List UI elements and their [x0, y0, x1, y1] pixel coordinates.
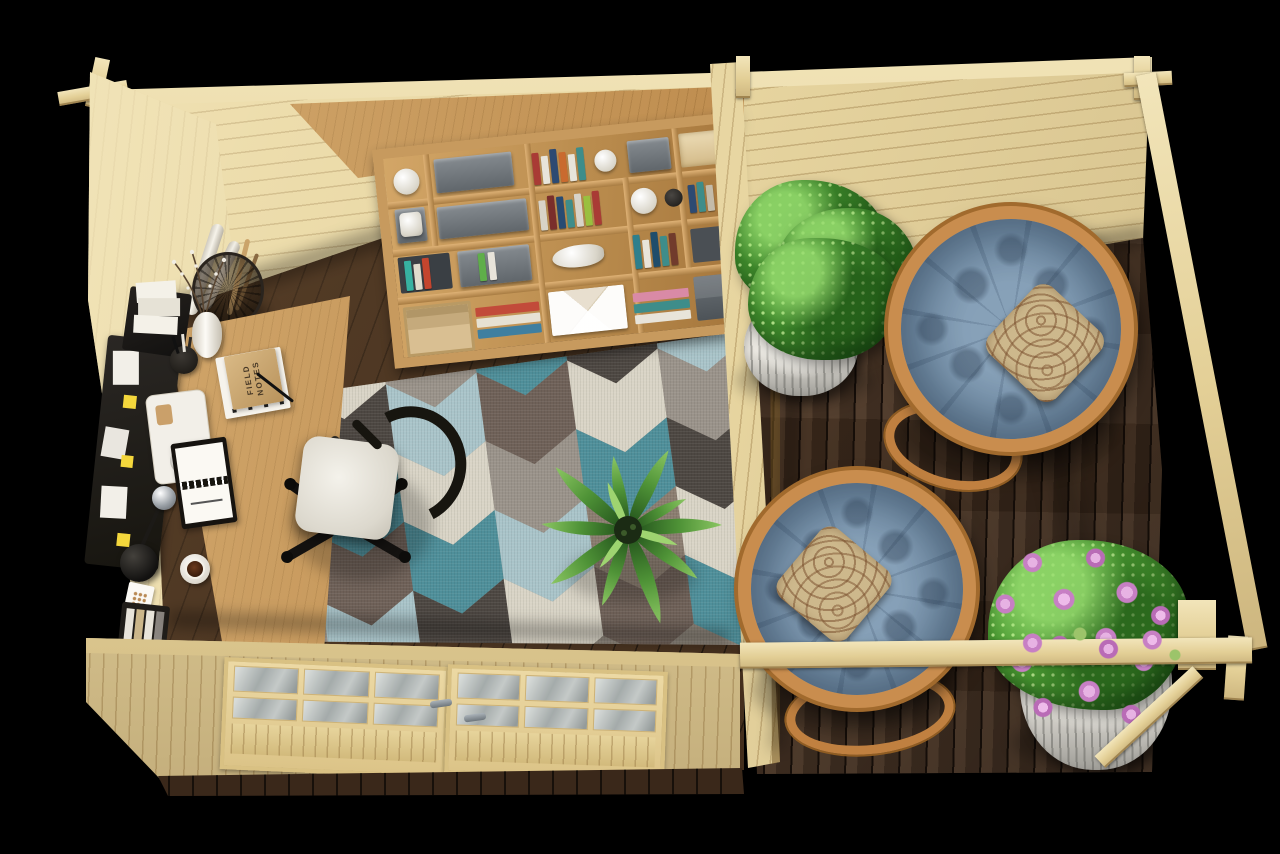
book-spine: [668, 233, 678, 266]
glass-pane: [372, 703, 438, 728]
stacked-books: [632, 288, 691, 328]
lamp-chrome-ball: [152, 486, 176, 510]
coffee-saucer: [180, 554, 210, 584]
papasan-chair-1: [888, 206, 1134, 452]
white-note: [113, 351, 139, 385]
white-note: [100, 486, 128, 519]
white-geo-vase: [399, 211, 423, 237]
book-spine: [642, 240, 652, 269]
door-lower-panel: [455, 731, 656, 768]
glazed-door-right: [444, 664, 668, 782]
bookshelf-unit: [372, 112, 753, 368]
glass-pane: [592, 708, 656, 732]
glazed-door-left: [220, 657, 451, 779]
white-pattern-box: [548, 284, 628, 336]
book-spine: [568, 154, 578, 182]
ruled-line: [191, 499, 223, 505]
book-spine: [413, 264, 423, 291]
paisley-pillow-1: [980, 278, 1110, 408]
paisley-pillow-2: [771, 521, 898, 648]
eraser: [155, 404, 173, 426]
gray-drawer-box: [433, 151, 514, 193]
partition-top-post: [736, 56, 750, 98]
white-dome-ornament: [630, 187, 659, 216]
door-lower-panel: [230, 723, 437, 762]
sticky-note: [120, 455, 133, 468]
white-dome-ornament: [392, 167, 421, 196]
white-cup-ornament: [593, 149, 617, 173]
bush-foliage: [748, 238, 898, 360]
wood-crate: [403, 301, 476, 358]
spiral-binding: [180, 476, 229, 491]
notepad-pages: [175, 442, 233, 524]
spiral-notepad: [170, 437, 237, 530]
glass-pane: [457, 673, 521, 701]
papasan-chair-2: [738, 470, 976, 708]
book-spine: [592, 191, 603, 226]
sticky-note: [116, 533, 130, 547]
glass-pane: [525, 675, 589, 703]
book-spine: [687, 184, 697, 213]
coffee-cup: [187, 561, 203, 577]
pen-cup: [170, 346, 198, 374]
lamp-shade: [120, 544, 158, 582]
glass-pane: [232, 697, 298, 722]
white-bird-figurine: [551, 242, 605, 269]
book-group: [404, 257, 432, 291]
book-spine: [706, 185, 716, 212]
gray-storage-bin: [436, 198, 529, 239]
book-group: [632, 229, 679, 269]
glass-pane: [233, 666, 299, 695]
glass-pane: [303, 669, 369, 698]
glass-pane: [374, 672, 440, 701]
binder: [153, 611, 164, 644]
glass-pane: [524, 706, 588, 730]
field-notes-notebook: FIELD NOTES: [224, 348, 285, 410]
scene-canvas: FIELD NOTES: [0, 0, 1280, 854]
glass-pane: [302, 700, 368, 725]
book-group: [687, 181, 715, 213]
sticky-note: [123, 395, 137, 409]
gray-box: [626, 137, 671, 173]
palm-plant: [532, 414, 728, 654]
book-spine: [565, 199, 575, 228]
book-group: [538, 191, 602, 231]
book-spine: [541, 156, 551, 185]
white-vase: [192, 312, 222, 358]
pink-flowers-over-rail: [1004, 616, 1194, 676]
glass-pane: [593, 677, 657, 705]
book-group: [531, 146, 586, 185]
book-spine: [576, 147, 586, 181]
stacked-books: [475, 301, 542, 343]
dried-branches: [158, 240, 238, 324]
